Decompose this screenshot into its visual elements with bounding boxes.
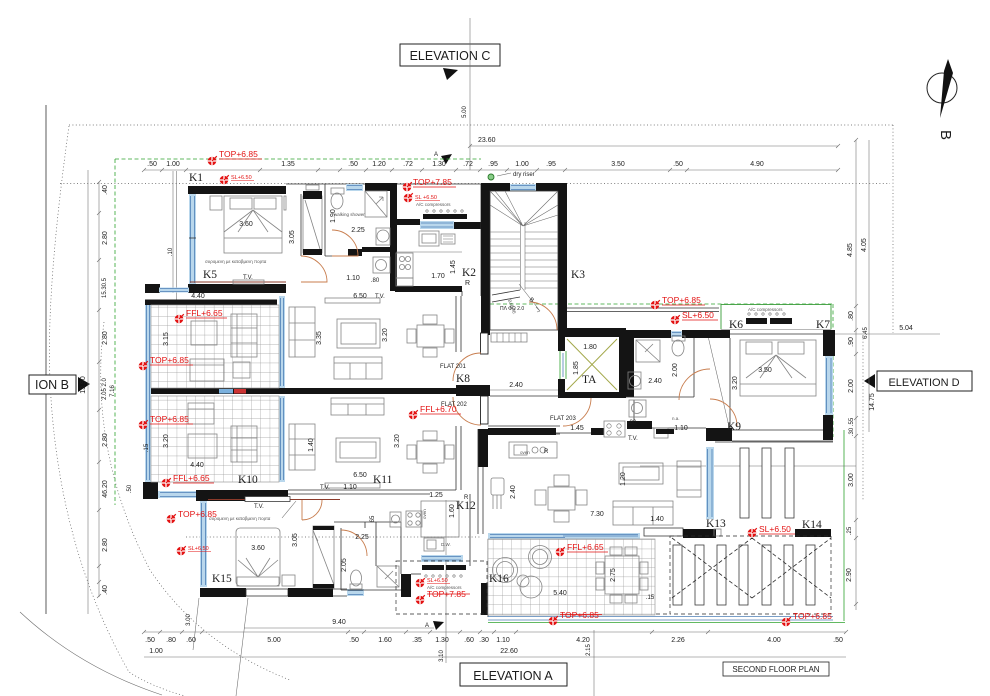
svg-text:3.50: 3.50 [758, 367, 772, 374]
svg-text:3.00: 3.00 [186, 614, 192, 626]
svg-text:K10: K10 [238, 474, 258, 486]
svg-text:TOP+6.85: TOP+6.85 [793, 611, 832, 621]
svg-text:2.80: 2.80 [102, 331, 109, 345]
svg-text:.30: .30 [479, 637, 489, 644]
svg-text:dry riser: dry riser [513, 172, 535, 178]
svg-text:4.40: 4.40 [190, 462, 204, 469]
svg-text:4.85: 4.85 [847, 243, 854, 257]
svg-text:.60: .60 [464, 637, 474, 644]
svg-text:D.W.: D.W. [441, 542, 451, 547]
svg-text:1.70: 1.70 [431, 273, 445, 280]
svg-text:2.90: 2.90 [846, 568, 853, 582]
svg-text:7.16: 7.16 [110, 385, 116, 397]
svg-text:2.15: 2.15 [586, 644, 592, 656]
svg-text:1.10: 1.10 [346, 275, 360, 282]
svg-text:.50: .50 [673, 161, 683, 168]
svg-text:SL+6.50: SL+6.50 [188, 546, 209, 552]
svg-text:6.50: 6.50 [353, 472, 367, 479]
svg-text:4.00: 4.00 [767, 637, 781, 644]
svg-text:.15: .15 [646, 595, 655, 601]
svg-text:.80: .80 [371, 278, 380, 284]
svg-text:2.05: 2.05 [341, 558, 348, 572]
svg-text:4.90: 4.90 [750, 161, 764, 168]
svg-text:.95: .95 [546, 161, 556, 168]
svg-text:A/C compressors: A/C compressors [427, 585, 462, 590]
svg-text:FLAT 203: FLAT 203 [550, 416, 576, 422]
svg-text:T.V.: T.V. [254, 504, 264, 510]
svg-text:SL+6.50: SL+6.50 [682, 310, 714, 320]
svg-text:4.20: 4.20 [576, 637, 590, 644]
svg-text:FLAT 201: FLAT 201 [440, 364, 466, 370]
svg-text:K7: K7 [816, 319, 830, 331]
svg-text:FFL+6.65: FFL+6.65 [186, 308, 223, 318]
svg-text:2.40: 2.40 [509, 382, 523, 389]
svg-text:K13: K13 [706, 518, 726, 530]
svg-text:1.20: 1.20 [372, 161, 386, 168]
svg-text:K9: K9 [727, 421, 741, 433]
svg-text:3.00: 3.00 [848, 473, 855, 487]
svg-text:.50: .50 [833, 637, 843, 644]
svg-text:5.04: 5.04 [899, 325, 913, 332]
svg-text:R: R [465, 280, 470, 287]
svg-text:3.10: 3.10 [439, 650, 445, 662]
svg-text:K5: K5 [203, 269, 217, 281]
svg-text:1.00: 1.00 [515, 161, 529, 168]
svg-text:22.60: 22.60 [500, 648, 518, 655]
svg-text:A: A [434, 152, 438, 158]
svg-text:1.80: 1.80 [583, 344, 597, 351]
svg-text:3.05: 3.05 [289, 230, 296, 244]
svg-text:T.V.: T.V. [375, 294, 385, 300]
svg-text:2.75: 2.75 [610, 568, 617, 582]
svg-text:K3: K3 [571, 269, 585, 281]
svg-text:5.40: 5.40 [553, 590, 567, 597]
svg-text:.95: .95 [488, 161, 498, 168]
svg-text:συρομενη με καταβμενη πορτα: συρομενη με καταβμενη πορτα [209, 516, 271, 521]
svg-text:K14: K14 [802, 519, 822, 531]
svg-text:.25: .25 [847, 526, 853, 535]
svg-text:2.25: 2.25 [355, 534, 369, 541]
svg-text:.90: .90 [848, 337, 855, 347]
svg-text:1.30: 1.30 [435, 637, 449, 644]
svg-text:T.V.: T.V. [628, 436, 638, 442]
svg-text:.50: .50 [349, 637, 359, 644]
svg-text:K8: K8 [456, 373, 470, 385]
svg-text:2.00: 2.00 [672, 363, 679, 377]
svg-text:.30 .55: .30 .55 [849, 417, 855, 436]
svg-text:.50: .50 [127, 484, 133, 493]
svg-text:ELEVATION D: ELEVATION D [888, 377, 959, 389]
svg-text:3.05: 3.05 [292, 533, 299, 547]
svg-text:9.40: 9.40 [332, 619, 346, 626]
svg-text:R: R [464, 495, 469, 501]
svg-text:TOP+6.85: TOP+6.85 [178, 509, 217, 519]
svg-text:6.50: 6.50 [353, 293, 367, 300]
svg-text:FFL+6.65: FFL+6.65 [567, 542, 604, 552]
svg-text:K6: K6 [729, 319, 743, 331]
svg-text:23.60: 23.60 [478, 137, 496, 144]
svg-text:K16: K16 [489, 573, 509, 585]
svg-text:walking shower: walking shower [334, 212, 365, 217]
svg-text:.80: .80 [628, 420, 637, 426]
svg-text:65: 65 [370, 515, 376, 522]
svg-text:A/C compressors: A/C compressors [416, 202, 451, 207]
svg-text:.72: .72 [463, 161, 473, 168]
svg-text:1.00: 1.00 [166, 161, 180, 168]
svg-text:3.60: 3.60 [251, 545, 265, 552]
svg-text:3.20: 3.20 [382, 328, 389, 342]
svg-text:.50: .50 [348, 161, 358, 168]
svg-text:6.45: 6.45 [863, 327, 869, 339]
svg-text:3.20: 3.20 [732, 376, 739, 390]
svg-text:TOP+6.85: TOP+6.85 [150, 355, 189, 365]
svg-text:.80: .80 [166, 637, 176, 644]
svg-text:SL+6.50: SL+6.50 [427, 578, 448, 584]
svg-text:5.00: 5.00 [462, 106, 468, 118]
svg-text:SL+6.50: SL+6.50 [759, 524, 791, 534]
svg-text:46.20: 46.20 [102, 480, 109, 498]
svg-text:1.40: 1.40 [650, 516, 664, 523]
svg-text:K1: K1 [189, 172, 203, 184]
svg-text:3.20: 3.20 [394, 434, 401, 448]
svg-text:K11: K11 [373, 474, 393, 486]
svg-text:.35: .35 [412, 637, 422, 644]
svg-text:oven: oven [520, 450, 530, 455]
svg-text:K15: K15 [212, 573, 232, 585]
svg-text:7.30: 7.30 [590, 511, 604, 518]
svg-text:ION B: ION B [35, 378, 69, 392]
svg-text:R: R [544, 449, 549, 455]
svg-text:2.26: 2.26 [671, 637, 685, 644]
svg-text:3.50: 3.50 [611, 161, 625, 168]
svg-text:1.45: 1.45 [570, 425, 584, 432]
svg-text:4.40: 4.40 [191, 293, 205, 300]
svg-text:K12: K12 [456, 500, 476, 512]
svg-text:.72: .72 [403, 161, 413, 168]
svg-text:FLAT 202: FLAT 202 [441, 402, 467, 408]
svg-text:1.00: 1.00 [149, 648, 163, 655]
svg-text:13.90: 13.90 [80, 376, 87, 394]
svg-text:SL +6.50: SL +6.50 [415, 195, 437, 201]
svg-text:1.60: 1.60 [378, 637, 392, 644]
svg-text:3.60: 3.60 [239, 221, 253, 228]
svg-text:1.30: 1.30 [432, 161, 446, 168]
svg-text:n.a.: n.a. [672, 416, 680, 421]
svg-text:TA: TA [582, 374, 597, 386]
svg-text:TOP+7.85: TOP+7.85 [413, 177, 452, 187]
svg-text:5.00: 5.00 [267, 637, 281, 644]
svg-text:14.75: 14.75 [869, 393, 876, 411]
svg-text:2.00: 2.00 [848, 379, 855, 393]
svg-text:3.15: 3.15 [163, 332, 170, 346]
svg-text:1.35: 1.35 [281, 161, 295, 168]
svg-text:2.25: 2.25 [351, 227, 365, 234]
svg-text:1.60: 1.60 [449, 504, 456, 518]
svg-text:2.80: 2.80 [102, 433, 109, 447]
svg-text:1.85: 1.85 [573, 361, 580, 375]
svg-text:TOP+6.85: TOP+6.85 [560, 610, 599, 620]
svg-text:1.10: 1.10 [674, 425, 688, 432]
svg-text:.15: .15 [144, 443, 150, 452]
svg-text:.40: .40 [102, 185, 109, 195]
svg-text:oven: oven [422, 509, 427, 519]
svg-text:T.V.: T.V. [320, 485, 330, 491]
svg-text:TOP+6.85: TOP+6.85 [662, 295, 701, 305]
svg-text:2.40: 2.40 [648, 378, 662, 385]
svg-text:TOP+6.85: TOP+6.85 [150, 414, 189, 424]
svg-text:4.05: 4.05 [861, 238, 868, 252]
svg-text:3.35: 3.35 [316, 331, 323, 345]
svg-text:SECOND FLOOR PLAN: SECOND FLOOR PLAN [732, 665, 819, 674]
svg-text:.10: .10 [168, 247, 174, 256]
svg-text:A/C compressors: A/C compressors [748, 307, 783, 312]
svg-text:1.10: 1.10 [496, 637, 510, 644]
svg-text:SL+6.50: SL+6.50 [231, 175, 252, 181]
svg-text:15.30.5: 15.30.5 [102, 277, 108, 298]
svg-text:1.40: 1.40 [308, 438, 315, 452]
svg-text:ELEVATION C: ELEVATION C [410, 49, 491, 63]
svg-text:3.20: 3.20 [163, 434, 170, 448]
svg-text:1.25: 1.25 [429, 492, 443, 499]
svg-text:TOP+6.85: TOP+6.85 [219, 149, 258, 159]
svg-text:.80: .80 [848, 311, 855, 321]
svg-text:1.10: 1.10 [343, 484, 357, 491]
svg-text:FFL+6.65: FFL+6.65 [173, 473, 210, 483]
svg-text:1.20: 1.20 [620, 472, 627, 486]
svg-text:2.80: 2.80 [102, 231, 109, 245]
svg-text:2.80: 2.80 [102, 538, 109, 552]
svg-text:2.40: 2.40 [510, 485, 517, 499]
svg-text:.50: .50 [147, 161, 157, 168]
svg-text:ELEVATION A: ELEVATION A [473, 669, 553, 683]
svg-text:.40: .40 [102, 585, 109, 595]
svg-text:K2: K2 [462, 267, 476, 279]
svg-text:συρομενη με καταβμενη πορτα: συρομενη με καταβμενη πορτα [205, 259, 267, 264]
svg-text:B: B [937, 130, 954, 140]
svg-text:.50: .50 [145, 637, 155, 644]
svg-text:2.05 2.0: 2.05 2.0 [102, 377, 108, 399]
svg-text:1.45: 1.45 [450, 260, 457, 274]
